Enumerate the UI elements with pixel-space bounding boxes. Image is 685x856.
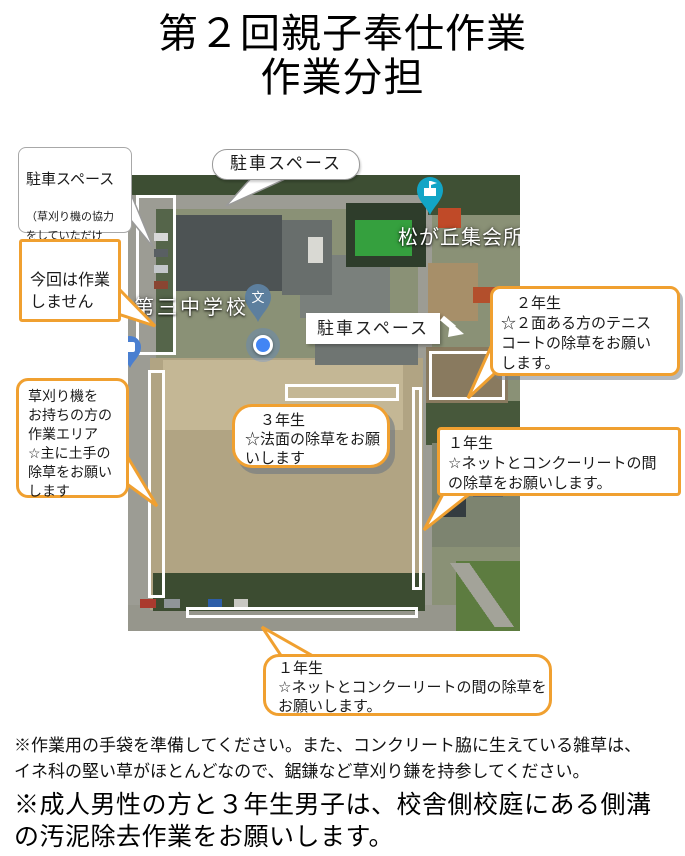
callout-grade1-right: １年生 ☆ネットとコンクーリートの間 の除草をお願いします。 (437, 427, 681, 496)
area-outline-parking-left (136, 195, 176, 355)
callout-mower: 草刈り機を お持ちの方の 作業エリア ☆主に土手の 除草をお願い します (16, 378, 129, 498)
location-dot-icon (246, 328, 280, 362)
parking-area-label: 駐車スペース (306, 313, 440, 344)
title-line2: 作業分担 (0, 56, 685, 100)
callout-grade1-bottom: １年生 ☆ネットとコンクーリートの間の除草を お願いします。 (263, 654, 552, 716)
callout-grade2: ２年生 ☆２面ある方のテニス コートの除草をお願い します。 (490, 286, 680, 376)
callout-no-work: 今回は作業 しません (19, 239, 121, 322)
area-outline-bottom-net (186, 607, 418, 618)
satellite-map: 松が丘集会所 文 第三中学校 駐車スペース (128, 175, 520, 631)
callout-grade3: ３年生 ☆法面の除草をお願 いします (232, 404, 390, 468)
note-adult-men: ※成人男性の方と３年生男子は、校舎側校庭にある側溝 の汚泥除去作業をお願いします… (14, 789, 685, 853)
area-outline-left-bank (148, 370, 165, 598)
area-outline-right-net (412, 387, 422, 590)
callout-parking-top: 駐車スペース (212, 149, 360, 180)
parking-arrow-icon (440, 315, 466, 341)
area-outline-top-slope (285, 384, 399, 401)
callout-parking-left: 駐車スペース （草刈り機の協力 をしていただけ る方優先） (18, 147, 132, 233)
community-hall-pin-icon (416, 176, 444, 216)
location-dot-center (253, 335, 273, 355)
school-pin-glyph: 文 (251, 290, 264, 305)
flyer-page: 第２回親子奉仕作業 作業分担 松が丘集会所 文 第三中学校 駐車スペ (0, 0, 685, 856)
page-title: 第２回親子奉仕作業 作業分担 (0, 12, 685, 100)
community-hall-label: 松が丘集会所 (398, 221, 520, 250)
school-name-label: 第三中学校 (134, 291, 249, 320)
title-line1: 第２回親子奉仕作業 (0, 12, 685, 56)
map-edge-poi-icon (128, 335, 142, 369)
callout-parking-left-title: 駐車スペース (26, 170, 129, 190)
note-gloves: ※作業用の手袋を準備してください。また、コンクリート脇に生えている雑草は、 イネ… (14, 733, 676, 785)
